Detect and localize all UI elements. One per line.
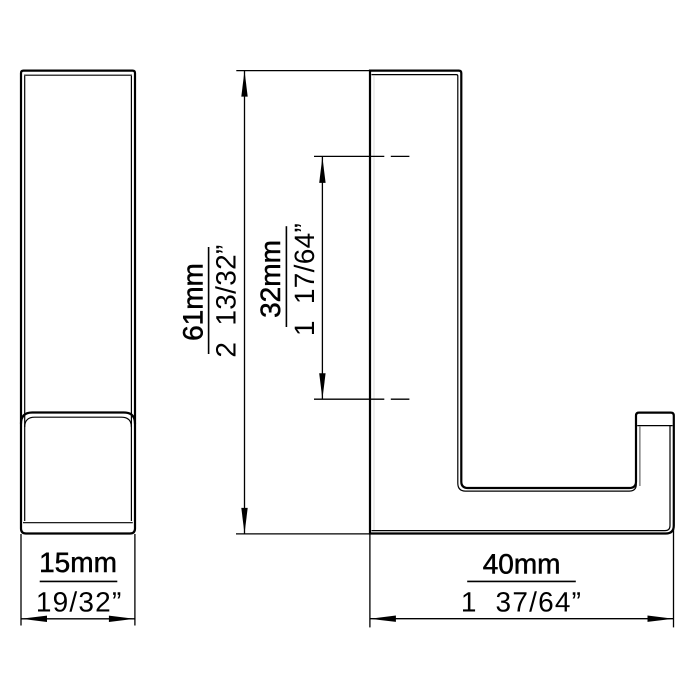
svg-text:61mm: 61mm [178, 263, 209, 341]
svg-text:1 37/64”: 1 37/64” [461, 587, 582, 618]
svg-text:1 17/64”: 1 17/64” [289, 223, 320, 336]
svg-text:40mm: 40mm [483, 548, 561, 579]
svg-text:19/32”: 19/32” [36, 587, 123, 618]
svg-text:32mm: 32mm [255, 240, 286, 318]
svg-text:15mm: 15mm [39, 547, 117, 578]
svg-text:2 13/32”: 2 13/32” [211, 244, 242, 357]
